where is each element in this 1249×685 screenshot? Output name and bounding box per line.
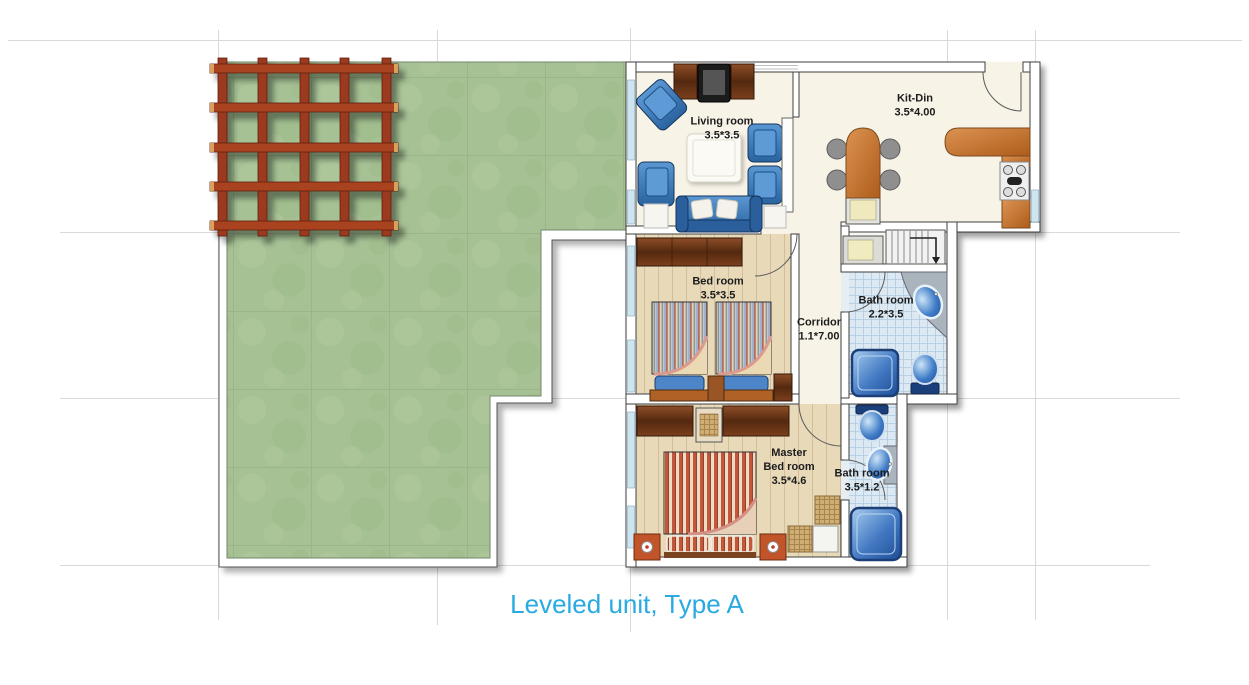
wicker-basket-2 bbox=[788, 526, 812, 552]
master-dresser bbox=[696, 408, 722, 442]
sofa bbox=[676, 196, 762, 232]
label-corridor: Corridor1.1*7.00 bbox=[797, 317, 841, 344]
bath2-toilet bbox=[856, 405, 888, 441]
pillow bbox=[719, 376, 768, 391]
bed-frame bbox=[664, 552, 756, 558]
floor-corridor bbox=[797, 226, 841, 398]
console-table bbox=[782, 118, 793, 212]
nightstand-left bbox=[634, 534, 660, 560]
side-table-right bbox=[764, 206, 786, 228]
bed-frame bbox=[650, 390, 709, 401]
nightstand-right bbox=[760, 534, 786, 560]
bath1-toilet bbox=[911, 354, 939, 394]
side-table-left bbox=[644, 204, 668, 228]
label-bath-room-2: Bath room3.5*1.2 bbox=[835, 468, 890, 495]
dining-chair bbox=[827, 139, 847, 159]
bath1-shower bbox=[852, 350, 898, 396]
dining-chair bbox=[827, 170, 847, 190]
label-bedroom: Bed room3.5*3.5 bbox=[692, 276, 743, 303]
lawn bbox=[227, 62, 626, 558]
label-master-bedroom: MasterBed room3.5*4.6 bbox=[763, 446, 814, 488]
terrace bbox=[219, 62, 626, 567]
utility-closet-lower bbox=[843, 236, 883, 264]
pillow bbox=[655, 376, 704, 391]
tv-unit bbox=[674, 64, 754, 102]
label-living-room: Living room3.5*3.5 bbox=[691, 116, 754, 143]
sofa-cushion bbox=[691, 199, 713, 220]
stairs bbox=[886, 230, 945, 264]
master-wardrobe-right bbox=[723, 406, 789, 436]
bedroom-dresser bbox=[774, 374, 792, 401]
twin-bed-1 bbox=[650, 302, 709, 401]
dining-chair bbox=[880, 139, 900, 159]
label-bath-room-1: Bath room2.2*3.5 bbox=[859, 295, 914, 322]
floor-entrance-gap bbox=[985, 62, 1023, 72]
bath2-shower bbox=[851, 508, 901, 560]
dining-chair bbox=[880, 170, 900, 190]
bedroom-wardrobe bbox=[637, 238, 742, 266]
plan-caption: Leveled unit, Type A bbox=[510, 589, 744, 620]
stove bbox=[1000, 162, 1029, 200]
bedside-bench bbox=[708, 376, 724, 401]
sofa-cushion bbox=[716, 199, 738, 219]
toilet-symbol bbox=[912, 354, 938, 384]
label-kit-din: Kit-Din3.5*4.00 bbox=[895, 93, 936, 120]
white-ottoman bbox=[813, 526, 838, 552]
pillow bbox=[667, 536, 709, 552]
floor-plan-page: Living room3.5*3.5 Kit-Din3.5*4.00 Bed r… bbox=[0, 0, 1249, 685]
pillow bbox=[711, 536, 753, 552]
floor-plan-drawing bbox=[0, 0, 1249, 685]
wicker-basket-1 bbox=[815, 496, 840, 524]
utility-closet-upper bbox=[846, 196, 880, 224]
floor-master-door-gap bbox=[799, 394, 841, 404]
armchair-left bbox=[638, 162, 674, 206]
toilet-symbol bbox=[859, 411, 885, 441]
master-wardrobe-left bbox=[637, 406, 693, 436]
floor-bath1-door-gap bbox=[841, 272, 849, 312]
